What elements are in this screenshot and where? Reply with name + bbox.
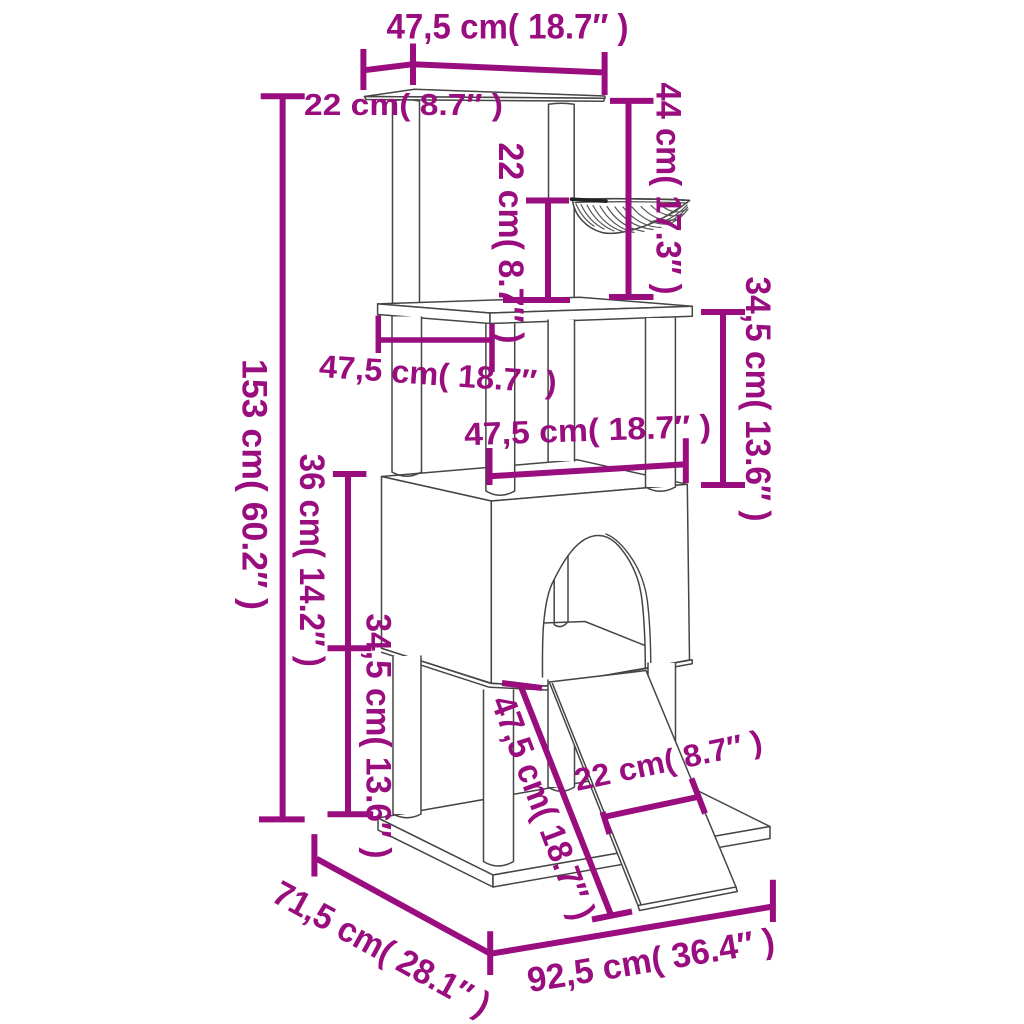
svg-text:36 cm( 14.2″ ): 36 cm( 14.2″ )	[292, 454, 331, 667]
svg-text:22 cm( 8.7″ ): 22 cm( 8.7″ )	[491, 143, 530, 344]
svg-text:44 cm( 17.3″ ): 44 cm( 17.3″ )	[649, 83, 688, 295]
svg-text:34,5 cm( 13.6″ ): 34,5 cm( 13.6″ )	[738, 277, 777, 522]
svg-text:47,5 cm( 18.7″ ): 47,5 cm( 18.7″ )	[387, 8, 629, 47]
svg-text:22 cm( 8.7″ ): 22 cm( 8.7″ )	[304, 88, 503, 122]
svg-text:153 cm( 60.2″ ): 153 cm( 60.2″ )	[234, 359, 273, 610]
svg-text:34,5 cm( 13.6″ ): 34,5 cm( 13.6″ )	[359, 614, 398, 859]
